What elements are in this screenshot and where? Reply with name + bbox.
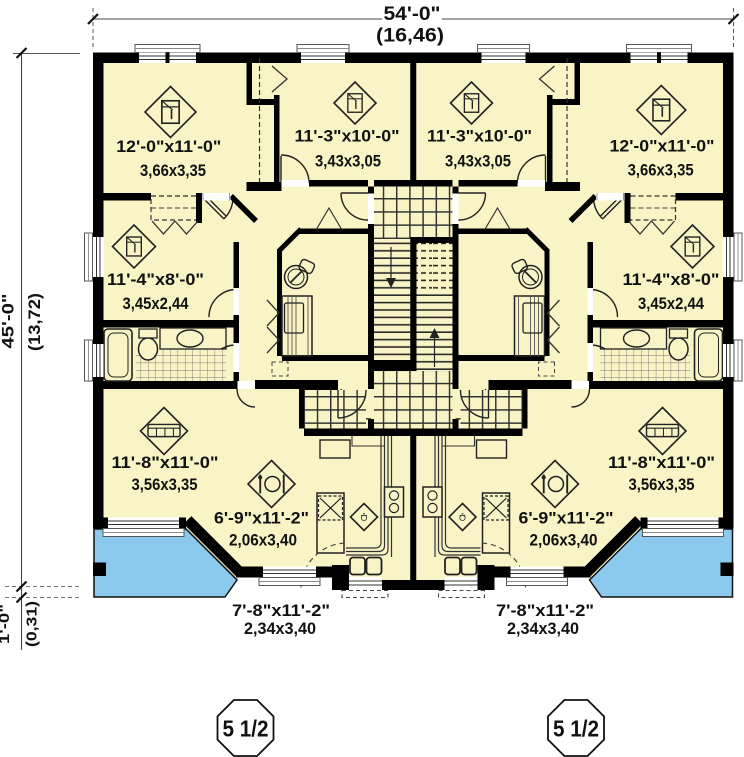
svg-text:54'-0": 54'-0": [384, 4, 441, 25]
svg-text:11'-4"x8'-0": 11'-4"x8'-0": [107, 271, 204, 289]
svg-text:11'-4"x8'-0": 11'-4"x8'-0": [623, 271, 720, 289]
svg-text:11'-3"x10'-0": 11'-3"x10'-0": [427, 128, 532, 146]
svg-text:5 1/2: 5 1/2: [223, 716, 269, 742]
svg-text:(16,46): (16,46): [376, 26, 444, 47]
svg-text:3,43x3,05: 3,43x3,05: [315, 153, 381, 171]
svg-text:11'-3"x10'-0": 11'-3"x10'-0": [295, 128, 400, 146]
svg-text:3,56x3,35: 3,56x3,35: [629, 476, 695, 494]
svg-text:2,06x3,40: 2,06x3,40: [229, 532, 297, 550]
svg-text:5 1/2: 5 1/2: [553, 716, 599, 742]
svg-text:(13,72): (13,72): [25, 293, 44, 351]
svg-text:7'-8"x11'-2": 7'-8"x11'-2": [496, 602, 594, 620]
svg-text:2,06x3,40: 2,06x3,40: [530, 532, 598, 550]
svg-text:1'-0": 1'-0": [0, 604, 13, 644]
svg-text:3,66x3,35: 3,66x3,35: [628, 162, 694, 180]
svg-text:12'-0"x11'-0": 12'-0"x11'-0": [116, 138, 221, 156]
svg-text:(0,31): (0,31): [24, 601, 41, 647]
svg-text:12'-0"x11'-0": 12'-0"x11'-0": [610, 138, 715, 156]
svg-text:3,45x2,44: 3,45x2,44: [123, 295, 190, 313]
svg-text:3,66x3,35: 3,66x3,35: [140, 162, 206, 180]
svg-text:11'-8"x11'-0": 11'-8"x11'-0": [608, 454, 715, 472]
svg-text:6'-9"x11'-2": 6'-9"x11'-2": [214, 510, 309, 528]
svg-text:6'-9"x11'-2": 6'-9"x11'-2": [519, 510, 614, 528]
svg-text:7'-8"x11'-2": 7'-8"x11'-2": [232, 602, 330, 620]
svg-text:11'-8"x11'-0": 11'-8"x11'-0": [112, 454, 219, 472]
svg-text:45'-0": 45'-0": [0, 294, 18, 349]
svg-text:2,34x3,40: 2,34x3,40: [244, 620, 316, 638]
svg-text:2,34x3,40: 2,34x3,40: [507, 620, 579, 638]
svg-text:3,56x3,35: 3,56x3,35: [132, 476, 198, 494]
svg-text:3,45x2,44: 3,45x2,44: [638, 295, 705, 313]
svg-text:3,43x3,05: 3,43x3,05: [445, 153, 511, 171]
